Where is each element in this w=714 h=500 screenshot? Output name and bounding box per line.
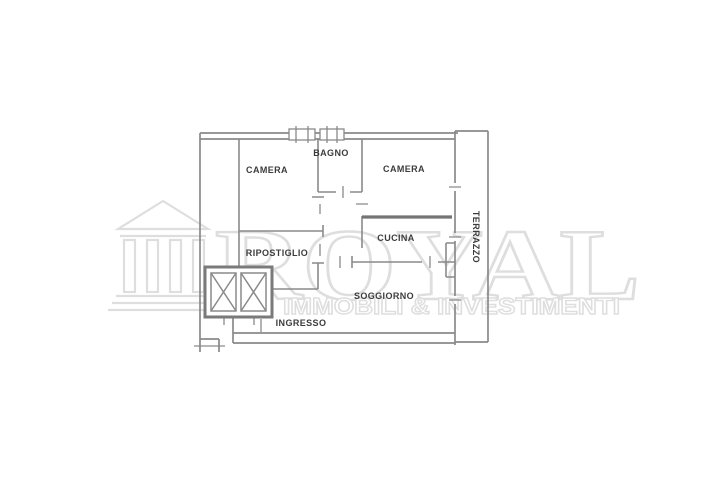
room-label-camera-1: CAMERA [246,165,288,175]
room-label-ingresso: INGRESSO [276,318,327,328]
window-icon [289,126,315,143]
floor-plan-svg: ROYAL IMMOBILI & INVESTIMENTI [0,0,714,500]
window-icon [320,126,344,143]
floorplan-image: ROYAL IMMOBILI & INVESTIMENTI [0,0,714,500]
temple-icon [108,201,219,310]
room-label-ripostiglio: RIPOSTIGLIO [246,248,308,258]
room-label-terrazzo: TERRAZZO [471,211,481,263]
room-label-bagno: BAGNO [313,148,349,158]
room-label-camera-2: CAMERA [383,164,425,174]
elevator-block [205,267,272,317]
brand-watermark-tagline: IMMOBILI & INVESTIMENTI [283,293,620,319]
room-label-cucina: CUCINA [377,233,414,243]
windows [289,126,344,143]
room-label-soggiorno: SOGGIORNO [354,291,414,301]
